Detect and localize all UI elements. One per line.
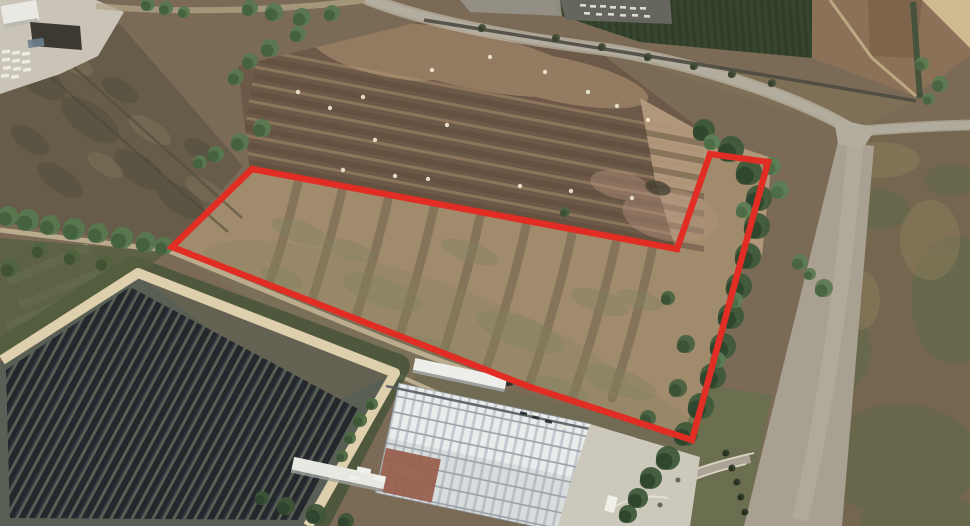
- satellite-map-view[interactable]: [0, 0, 970, 526]
- satellite-canvas[interactable]: [0, 0, 970, 526]
